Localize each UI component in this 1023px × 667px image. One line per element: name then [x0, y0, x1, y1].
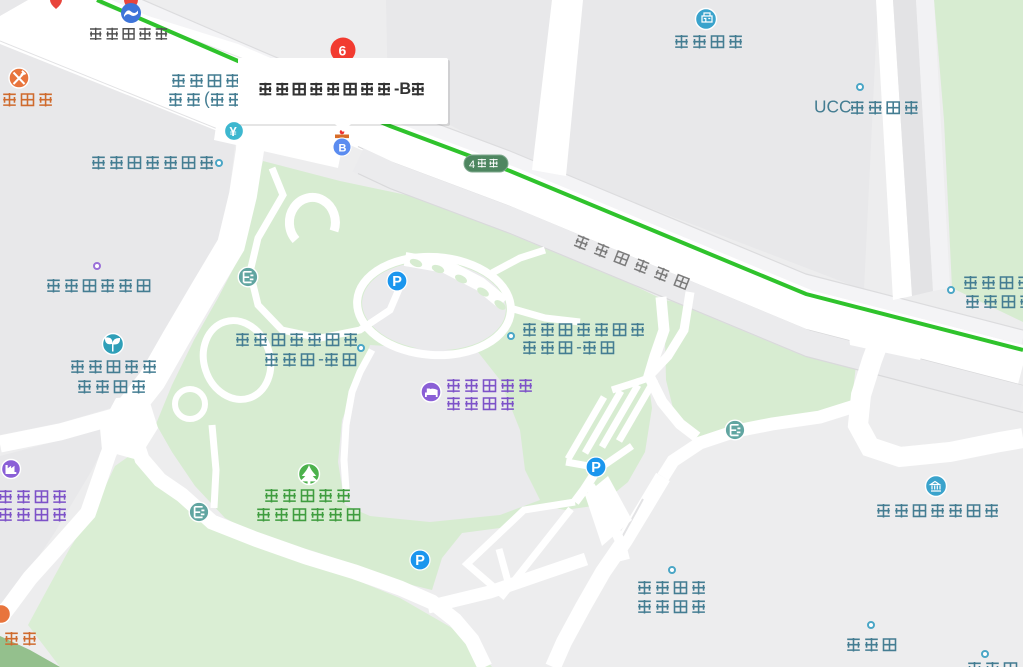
svg-text:-: - — [318, 349, 324, 369]
svg-text:UCC: UCC — [814, 97, 851, 117]
svg-text:¥: ¥ — [230, 124, 238, 139]
svg-text:P: P — [415, 553, 425, 569]
svg-text:-B: -B — [394, 80, 411, 98]
svg-text:P: P — [591, 460, 601, 476]
svg-text:P: P — [392, 274, 402, 290]
svg-text:4: 4 — [469, 159, 475, 171]
svg-text:B: B — [339, 143, 347, 155]
svg-text:-: - — [576, 337, 582, 357]
svg-text:6: 6 — [339, 43, 347, 59]
svg-text:(: ( — [204, 89, 210, 109]
